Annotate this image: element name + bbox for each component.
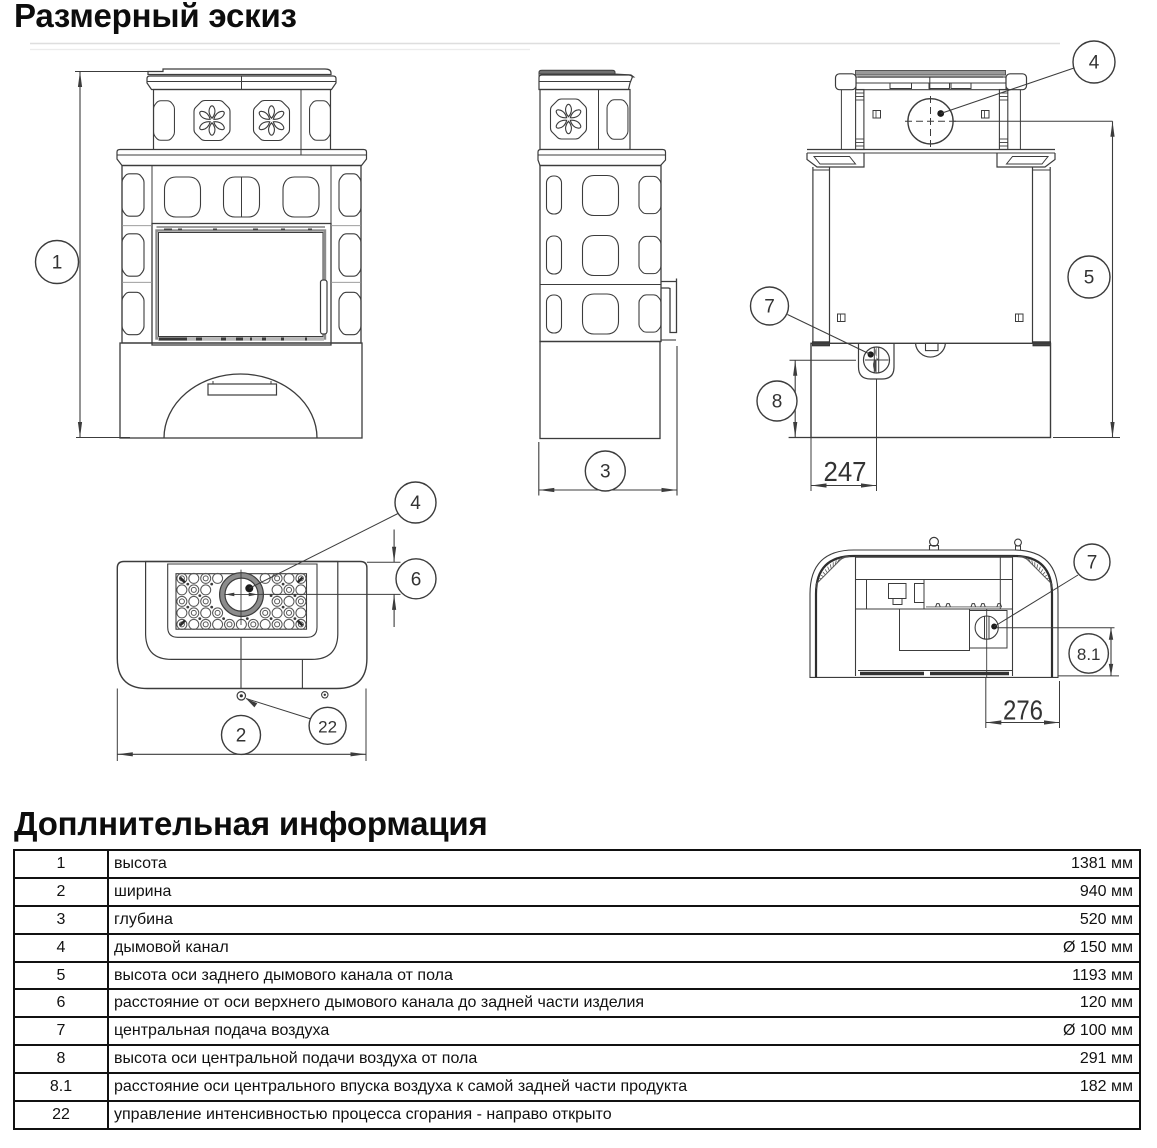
svg-text:6: 6 (411, 569, 422, 590)
svg-text:3: 3 (600, 462, 611, 483)
svg-text:247: 247 (824, 456, 867, 487)
svg-text:4: 4 (1089, 53, 1100, 74)
svg-text:7: 7 (764, 297, 775, 318)
svg-text:8: 8 (772, 392, 783, 413)
svg-text:22: 22 (318, 717, 337, 736)
svg-text:4: 4 (410, 493, 421, 514)
svg-text:5: 5 (1084, 268, 1095, 289)
svg-text:2: 2 (236, 725, 247, 746)
svg-text:7: 7 (1087, 553, 1098, 574)
svg-text:8.1: 8.1 (1077, 645, 1101, 664)
svg-text:276: 276 (1003, 695, 1043, 726)
svg-text:1: 1 (52, 253, 63, 274)
